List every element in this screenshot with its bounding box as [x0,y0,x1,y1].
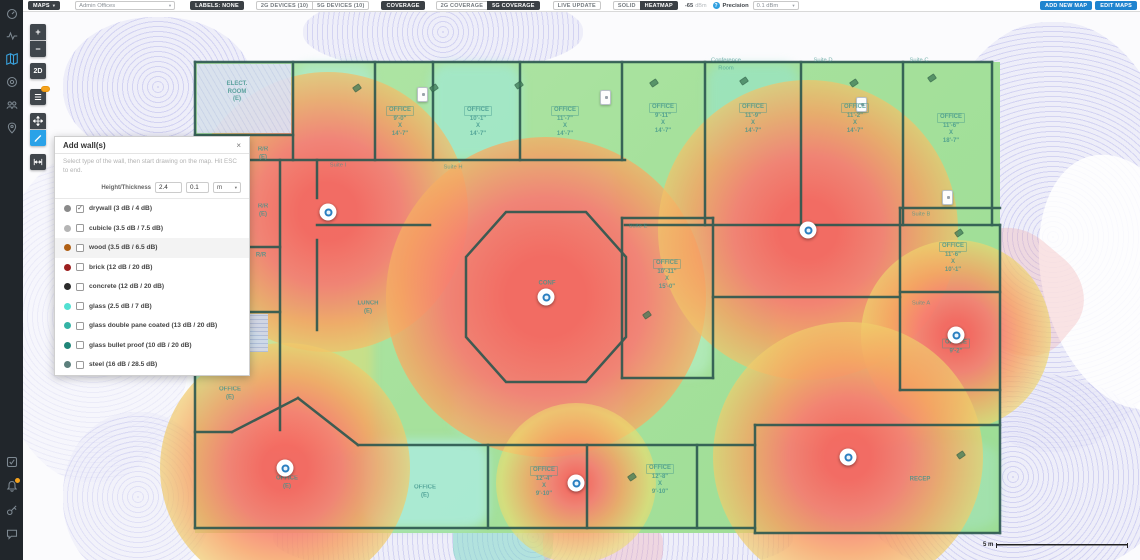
map-select[interactable]: Admin Offices▾ [75,1,175,10]
coverage-button[interactable]: COVERAGE [381,1,424,10]
precision-label: Precision [723,3,749,9]
unifi-map-screen: { "toolbar": { "maps_label": "MAPS", "ma… [0,0,1140,560]
wall-color-dot [64,225,71,232]
room-label: OFFICE9'-11"X14'-7" [649,103,677,135]
dbm-unit-label: dBm [695,3,706,9]
wall-color-dot [64,283,71,290]
wall-type-label: glass bullet proof (10 dB / 20 dB) [89,342,192,349]
access-point-icon[interactable] [277,460,294,477]
wall-type-label: concrete (12 dB / 20 dB) [89,283,164,290]
wall-type-label: wood (3.5 dB / 6.5 dB) [89,244,158,251]
wall-type-row[interactable]: steel (16 dB / 28.5 dB) [55,355,249,375]
precision-select[interactable]: 0.1 dBm▾ [753,1,799,10]
room-label: R/R(E) [258,204,268,219]
devices-2g-button[interactable]: 2G DEVICES (10) [256,1,313,10]
dashboard-icon[interactable] [6,8,18,20]
room-label: OFFICE11'-6"X18'-7" [937,113,965,145]
render-mode-group: SOLID HEATMAP [613,1,678,10]
room-label: OFFICE11'-6"X10'-1" [939,242,967,274]
room-label: Suite A [912,300,930,308]
coverage-5g-button[interactable]: 5G COVERAGE [487,1,540,10]
wall-color-dot [64,244,71,251]
maps-dropdown-button[interactable]: MAPS▾ [28,1,60,10]
chevron-down-icon: ▾ [169,3,171,9]
device-marker[interactable] [417,87,428,102]
wall-height-input[interactable] [155,182,182,193]
wall-color-dot [64,342,71,349]
room-label: Suite H [443,164,462,172]
zoom-in-button[interactable]: + [30,24,46,40]
2d-mode-button[interactable]: 2D [30,63,46,79]
wall-type-checkbox[interactable] [76,341,84,349]
room-label: OFFICE11'-7"X14'-7" [551,106,579,138]
wall-color-dot [64,205,71,212]
wall-type-checkbox[interactable]: ✓ [76,205,84,213]
room-label: OFFICE9'-0"X14'-7" [386,106,414,138]
devices-toggle-group: 2G DEVICES (10) 5G DEVICES (10) [256,1,370,10]
device-marker[interactable] [600,90,611,105]
scale-line [996,543,1128,548]
labels-button[interactable]: LABELS: NONE [190,1,244,10]
room-label: OFFICE(E) [219,387,241,402]
wall-color-dot [64,322,71,329]
notification-badge [41,86,50,92]
scale-label: 5 m [983,542,993,548]
room-label: RECEP [910,476,931,484]
room-label: OFFICE10'-11"X15'-0" [653,259,681,291]
room-label: OFFICE(E) [414,485,436,500]
room-label: OFFICE10'-1"X14'-7" [464,106,492,138]
wall-type-label: glass double pane coated (13 dB / 20 dB) [89,322,217,329]
left-nav-rail [0,0,23,560]
unit-select[interactable]: m▾ [213,182,241,193]
add-walls-panel: Add wall(s) × Select type of the wall, t… [54,136,250,376]
coverage-2g-button[interactable]: 2G COVERAGE [436,1,489,10]
clients-icon[interactable] [6,99,18,111]
chevron-down-icon: ▾ [792,3,794,9]
close-icon[interactable]: × [236,142,241,150]
wall-type-list: ✓drywall (3 dB / 4 dB)cubicle (3.5 dB / … [55,199,249,375]
top-toolbar: MAPS▾ Admin Offices▾ LABELS: NONE 2G DEV… [23,0,1140,12]
room-label: R/R(E) [258,147,268,162]
panel-title: Add wall(s) [63,141,106,150]
wall-color-dot [64,303,71,310]
room-label: Suite B [912,211,931,219]
wall-type-checkbox[interactable] [76,244,84,252]
panel-header: Add wall(s) × [55,137,249,154]
wall-type-checkbox[interactable] [76,302,84,310]
room-label: Suite C [909,57,928,65]
access-point-icon[interactable] [840,449,857,466]
wall-type-row[interactable]: cubicle (3.5 dB / 7.5 dB) [55,219,249,239]
wall-type-label: cubicle (3.5 dB / 7.5 dB) [89,225,163,232]
chevron-down-icon: ▾ [235,185,237,191]
access-point-icon[interactable] [538,289,555,306]
coverage-band-group: 2G COVERAGE 5G COVERAGE [436,1,540,10]
room-label: CONF [539,280,556,288]
devices-5g-button[interactable]: 5G DEVICES (10) [312,1,369,10]
live-update-button[interactable]: LIVE UPDATE [553,1,601,10]
access-point-icon[interactable] [800,222,817,239]
map-tool-column: + − 2D [30,24,46,170]
add-new-map-button[interactable]: ADD NEW MAP [1040,1,1092,10]
solid-button[interactable]: SOLID [613,1,641,10]
heatmap-button[interactable]: HEATMAP [640,1,678,10]
wall-type-row[interactable]: glass bullet proof (10 dB / 20 dB) [55,336,249,356]
wall-color-dot [64,264,71,271]
settings-icon[interactable] [6,504,18,516]
wall-color-dot [64,361,71,368]
wall-type-checkbox[interactable] [76,322,84,330]
wall-type-label: brick (12 dB / 20 dB) [89,264,152,271]
insights-icon[interactable] [6,122,18,134]
wall-type-checkbox[interactable] [76,361,84,369]
wall-type-row[interactable]: glass double pane coated (13 dB / 20 dB) [55,316,249,336]
wall-type-label: drywall (3 dB / 4 dB) [89,205,152,212]
map-icon[interactable] [6,53,18,65]
access-point-icon[interactable] [948,327,965,344]
room-label: Suite I [330,162,346,170]
wall-type-label: glass (2.5 dB / 7 dB) [89,303,152,310]
alert-badge [14,477,21,484]
chat-icon[interactable] [6,528,18,540]
height-thickness-row: Height/Thickness m▾ [55,178,249,199]
draw-wall-tool-button[interactable] [30,130,46,146]
info-icon[interactable]: ? [713,2,720,9]
wall-type-row[interactable]: wood (3.5 dB / 6.5 dB) [55,238,249,258]
chevron-down-icon: ▾ [53,3,55,9]
statistics-icon[interactable] [6,30,18,42]
panel-description: Select type of the wall, then start draw… [55,154,249,178]
wall-type-checkbox[interactable] [76,283,84,291]
room-label: OFFICE(E) [276,476,298,491]
wall-type-row[interactable]: concrete (12 dB / 20 dB) [55,277,249,297]
events-icon[interactable] [6,456,18,468]
wall-type-row[interactable]: glass (2.5 dB / 7 dB) [55,297,249,317]
dbm-value: -65 [685,3,693,9]
room-label: R/R [256,252,266,260]
room-label: ELECT.ROOM(E) [227,81,248,104]
room-label: LUNCH(E) [358,301,379,316]
room-label: ConferenceRoom [711,58,741,73]
measure-tool-button[interactable] [30,154,46,170]
height-thickness-label: Height/Thickness [101,185,151,191]
wall-type-checkbox[interactable] [76,263,84,271]
room-label: OFFICE12'-8"X9'-10" [646,464,674,496]
room-label: OFFICE11'-2"X14'-7" [841,103,869,135]
room-label: Suite E [629,223,648,231]
devices-icon[interactable] [6,76,18,88]
access-point-icon[interactable] [320,204,337,221]
wall-type-row[interactable]: ✓drywall (3 dB / 4 dB) [55,199,249,219]
access-point-icon[interactable] [568,475,585,492]
room-label: OFFICE12'-4"X9'-10" [530,466,558,498]
edit-maps-button[interactable]: EDIT MAPS [1095,1,1137,10]
wall-type-row[interactable]: brick (12 dB / 20 dB) [55,258,249,278]
map-scale-bar: 5 m [983,542,1128,548]
zoom-out-button[interactable]: − [30,41,46,57]
wall-type-checkbox[interactable] [76,224,84,232]
alerts-icon[interactable] [6,480,18,492]
wall-type-label: steel (16 dB / 28.5 dB) [89,361,157,368]
layers-list-button[interactable] [30,89,46,105]
pan-tool-button[interactable] [30,113,46,129]
room-label: Suite D [813,57,832,65]
wall-thickness-input[interactable] [186,182,209,193]
room-label: OFFICE11'-9"X14'-7" [739,103,767,135]
device-marker[interactable] [942,190,953,205]
